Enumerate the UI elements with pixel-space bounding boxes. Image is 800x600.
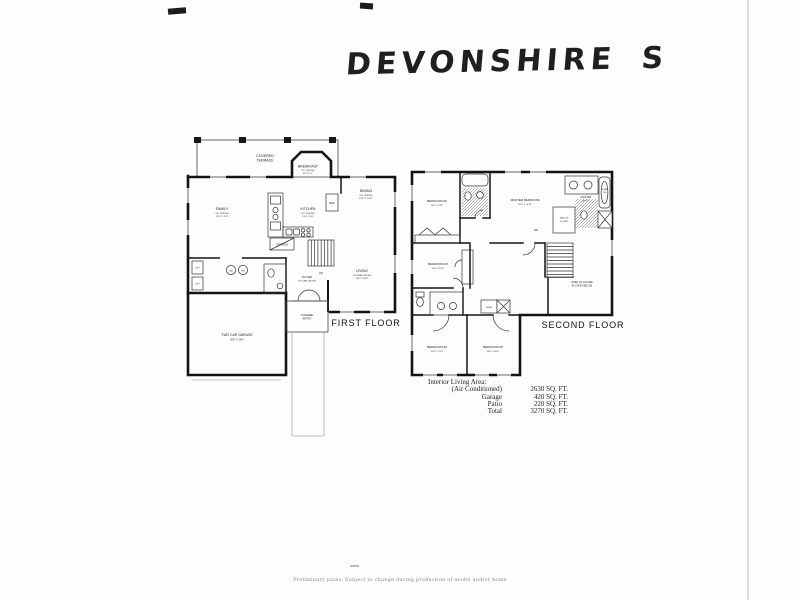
disclaimer-text: Preliminary plans: Subject to change dur… bbox=[0, 577, 800, 583]
sink-icon bbox=[449, 302, 456, 309]
sink-icon bbox=[570, 181, 578, 189]
scan-artifact-mark bbox=[168, 7, 186, 15]
scan-artifact-mark bbox=[360, 3, 373, 10]
opt-label: OPT bbox=[195, 284, 200, 286]
sink-icon bbox=[584, 181, 592, 189]
toilet-icon bbox=[417, 298, 424, 307]
foyer-label: FOYER bbox=[302, 275, 313, 279]
foyer-ceiling: VOLUME CEILING bbox=[298, 281, 316, 283]
stairs-down-icon: DN bbox=[534, 228, 573, 277]
master-bedroom-label: MASTER BEDROOM bbox=[511, 198, 540, 202]
walk-in-closet bbox=[553, 207, 575, 233]
foyer-entry-doors bbox=[286, 290, 328, 332]
area-row-label: Total bbox=[428, 408, 502, 415]
kitchen-dims: 13'4" X 9'0" bbox=[302, 216, 313, 218]
living-label: LIVING bbox=[356, 269, 368, 273]
bedroom4-label: BEDROOM #4 bbox=[427, 345, 447, 349]
area-summary-table: Interior Living Area: (Air Conditioned) … bbox=[428, 379, 568, 415]
powder-room bbox=[264, 264, 286, 293]
toilet-icon bbox=[465, 192, 471, 200]
toilet-icon bbox=[268, 269, 274, 277]
dryer-icon: DR bbox=[241, 270, 245, 272]
master-bedroom-dims: 16'0" X 13'10" bbox=[518, 204, 532, 206]
garage-label: TWO CAR GARAGE bbox=[221, 333, 253, 337]
covered-entry-label: COVERED bbox=[301, 313, 314, 317]
family-dims: 17'0" X 15'0" bbox=[216, 216, 229, 218]
plan-title-handwritten: DEVONSHIRE S bbox=[345, 41, 670, 83]
toilet-icon bbox=[581, 211, 587, 219]
bathroom2 bbox=[462, 174, 488, 216]
exterior-walls bbox=[188, 152, 395, 375]
breakfast-label: BREAKFAST bbox=[298, 165, 318, 169]
entry-walkway bbox=[192, 332, 324, 436]
opt-label: OPT bbox=[195, 268, 200, 270]
bedroom3-label: BEDROOM #3 bbox=[428, 262, 448, 266]
covered-terrace: COVERED TERRACE bbox=[194, 137, 338, 177]
scan-edge-line bbox=[747, 0, 749, 600]
bedroom5-label: BEDROOM #5 bbox=[483, 345, 503, 349]
ref-label: REF bbox=[329, 201, 335, 205]
bedroom5-dims: 10'0" X 10'0" bbox=[487, 351, 500, 353]
bathroom3 bbox=[416, 292, 463, 315]
living-dims: 14'0" X 16'0" bbox=[356, 278, 369, 280]
sink-icon bbox=[277, 283, 283, 289]
sink-icon bbox=[437, 302, 444, 309]
roman-tub-label: ROMAN bbox=[601, 188, 609, 191]
open-to-volume-label: IN LIVING BELOW bbox=[572, 285, 593, 288]
walk-in-closet-label: WALK-IN bbox=[560, 217, 569, 220]
walk-in-closet-label: CLOSET bbox=[560, 221, 569, 223]
area-row-value: 3270 SQ. FT. bbox=[502, 408, 568, 415]
dn-label: DN bbox=[534, 228, 538, 232]
dining-ceiling: 9'0" CEILING bbox=[360, 195, 373, 197]
storage-closet: STORAGE bbox=[270, 238, 294, 250]
laundry-area: OPT OPT WA DR bbox=[192, 261, 248, 290]
family-label: FAMILY bbox=[216, 207, 229, 211]
living-ceiling: VOLUME CEILING bbox=[353, 275, 372, 277]
scan-smudge bbox=[350, 565, 359, 567]
breakfast-dims: 9'8" X 7'0" bbox=[303, 173, 313, 175]
stairs-up-icon: UP bbox=[308, 240, 334, 275]
kitchen-label: KITCHEN bbox=[301, 207, 316, 211]
terrace-label: COVERED bbox=[256, 154, 274, 158]
breakfast-ceiling: 9'0" CEILING bbox=[302, 170, 315, 172]
second-floor-title: SECOND FLOOR bbox=[542, 320, 625, 330]
first-floor-title: FIRST FLOOR bbox=[331, 318, 400, 328]
storage-label: STORAGE bbox=[276, 244, 288, 247]
master-bath-label: MASTER bbox=[581, 195, 592, 199]
bedroom2-label: BEDROOM #2 bbox=[427, 199, 447, 203]
sink-icon bbox=[477, 192, 484, 199]
master-bath-label: BATH bbox=[583, 199, 590, 203]
dining-dims: 12'4" X 13'10" bbox=[359, 198, 373, 200]
family-ceiling: 9'0" CEILING bbox=[216, 213, 229, 215]
table-row: Total 3270 SQ. FT. bbox=[428, 408, 568, 415]
up-label: UP bbox=[319, 271, 323, 275]
washer-icon: WA bbox=[229, 269, 233, 272]
linen-closet: LINEN bbox=[481, 300, 510, 313]
first-floor-room-labels: BREAKFAST 9'0" CEILING 9'8" X 7'0" DININ… bbox=[216, 165, 374, 342]
terrace-label: TERRACE bbox=[256, 159, 274, 163]
bedroom4-dims: 10'0" X 11'0" bbox=[431, 351, 443, 353]
refrigerator-icon: REF bbox=[326, 194, 338, 211]
bedroom2-dims: 10'0" X 13'0" bbox=[431, 205, 444, 207]
kitchen-ceiling: 9'0" CEILING bbox=[302, 213, 315, 215]
first-floor-plan: COVERED TERRACE bbox=[180, 130, 410, 445]
scanned-floor-plan-page: DEVONSHIRE S COVERED TERRACE bbox=[0, 0, 800, 600]
kitchen-counter bbox=[268, 193, 313, 237]
bedroom3-dims: 11'0" X 13'0" bbox=[432, 268, 444, 270]
master-bath: ROMAN TUB MASTER BATH WALK-IN CLOSET bbox=[553, 176, 612, 233]
garage-dims: 20'0" X 19'4" bbox=[230, 339, 244, 342]
bedroom2-closet bbox=[415, 228, 460, 243]
linen-label: LINEN bbox=[486, 307, 493, 309]
tub-icon bbox=[462, 174, 488, 186]
covered-entry-label: ENTRY bbox=[303, 317, 312, 321]
dining-label: DINING bbox=[360, 189, 373, 193]
